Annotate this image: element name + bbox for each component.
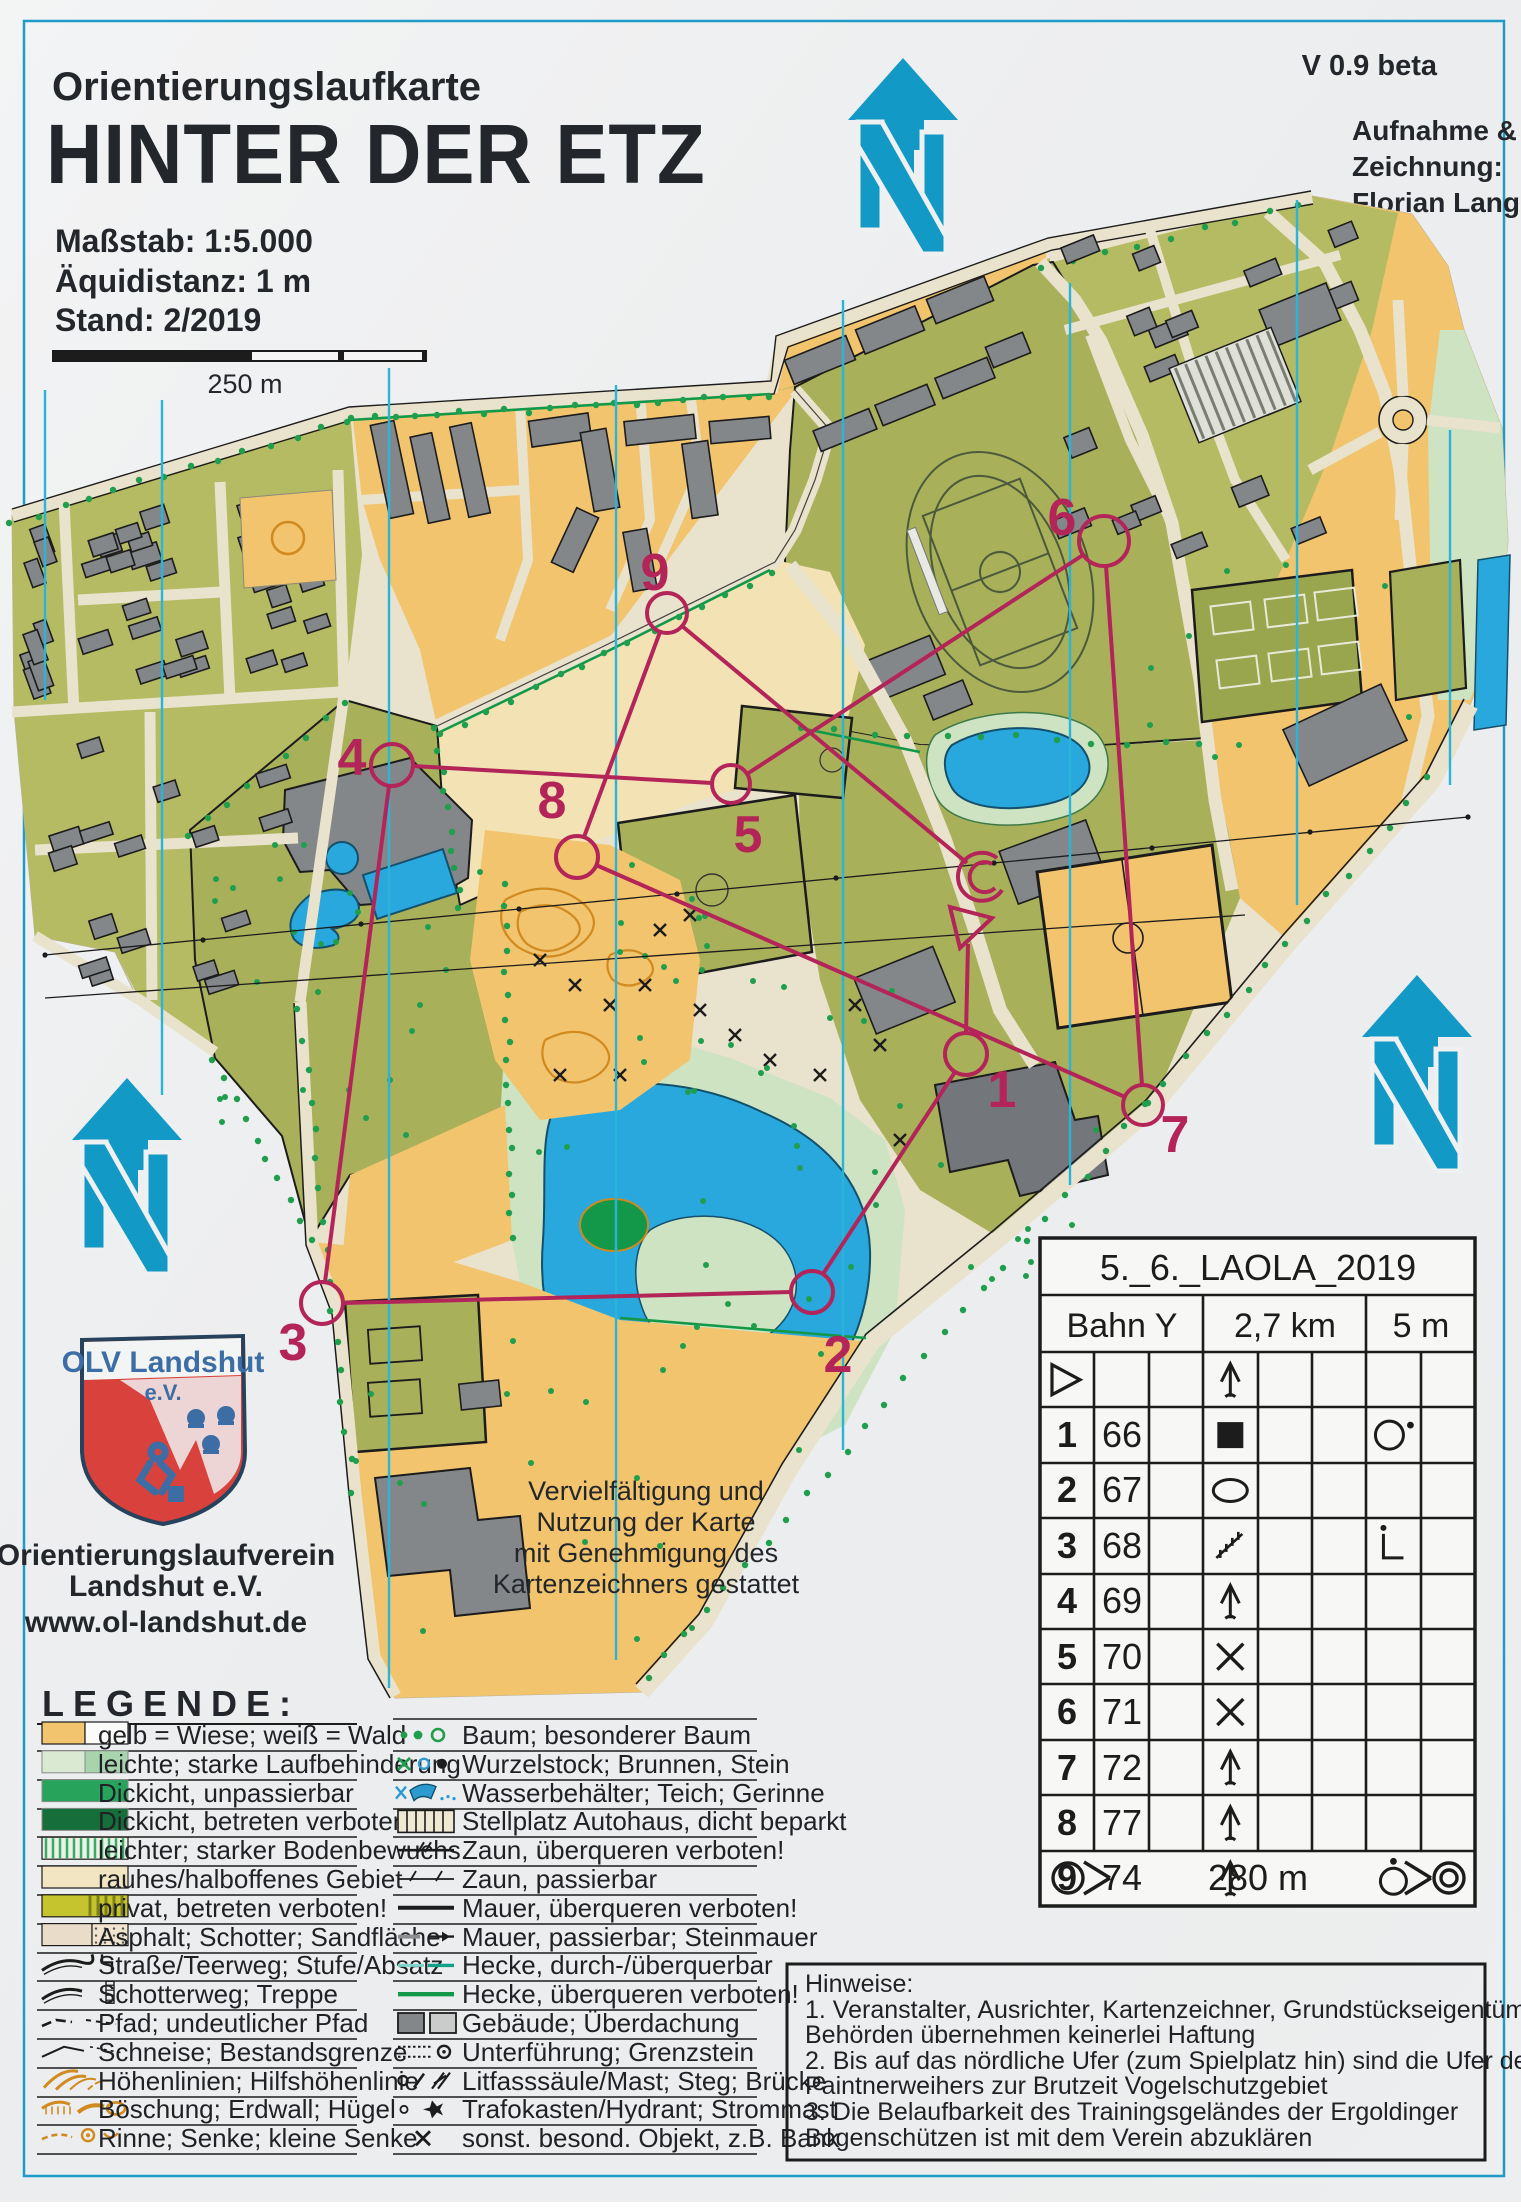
svg-text:LEGENDE:: LEGENDE: <box>42 1683 300 1724</box>
svg-text:Höhenlinien; Hilfshöhenlinie: Höhenlinien; Hilfshöhenlinie <box>98 2066 419 2096</box>
svg-text:4: 4 <box>338 729 367 787</box>
svg-text:3. Die Belaufbarkeit des Train: 3. Die Belaufbarkeit des Trainingsgeländ… <box>805 2098 1458 2126</box>
svg-text:Unterführung; Grenzstein: Unterführung; Grenzstein <box>462 2037 754 2067</box>
svg-text:6: 6 <box>1048 489 1077 547</box>
svg-text:Hinweise:: Hinweise: <box>805 1970 913 1998</box>
svg-text:sonst. besond. Objekt, z.B. Ba: sonst. besond. Objekt, z.B. Bank <box>462 2123 840 2153</box>
svg-text:Rinne; Senke; kleine Senke: Rinne; Senke; kleine Senke <box>98 2123 417 2153</box>
svg-text:Vervielfältigung und: Vervielfältigung und <box>528 1476 764 1506</box>
svg-text:70: 70 <box>1102 1636 1142 1677</box>
svg-text:leichte; starke Laufbehinderun: leichte; starke Laufbehinderung <box>98 1749 461 1779</box>
svg-text:68: 68 <box>1102 1525 1142 1566</box>
svg-text:8: 8 <box>1057 1802 1077 1843</box>
svg-text:3: 3 <box>1057 1525 1077 1566</box>
svg-text:Kartenzeichners gestattet: Kartenzeichners gestattet <box>493 1569 800 1599</box>
svg-text:rauhes/halboffenes Gebiet: rauhes/halboffenes Gebiet <box>98 1864 403 1894</box>
svg-text:4: 4 <box>1057 1580 1077 1621</box>
svg-text:Dickicht, betreten verboten!: Dickicht, betreten verboten! <box>98 1806 415 1836</box>
svg-text:Bahn Y: Bahn Y <box>1067 1307 1178 1345</box>
svg-text:Trafokasten/Hydrant; Strommast: Trafokasten/Hydrant; Strommast <box>462 2094 837 2124</box>
svg-text:2. Bis auf das nördliche Ufer: 2. Bis auf das nördliche Ufer (zum Spiel… <box>805 2047 1521 2075</box>
svg-text:Nutzung der Karte: Nutzung der Karte <box>536 1507 755 1537</box>
svg-text:Maßstab: 1:5.000: Maßstab: 1:5.000 <box>55 223 313 259</box>
svg-text:6: 6 <box>1057 1691 1077 1732</box>
svg-text:Äquidistanz: 1 m: Äquidistanz: 1 m <box>55 263 311 299</box>
svg-text:67: 67 <box>1102 1469 1142 1510</box>
svg-text:72: 72 <box>1102 1747 1142 1788</box>
svg-text:Zeichnung:: Zeichnung: <box>1352 151 1503 182</box>
svg-text:280 m: 280 m <box>1208 1857 1308 1898</box>
svg-text:Pfad; undeutlicher Pfad: Pfad; undeutlicher Pfad <box>98 2008 368 2038</box>
svg-text:2: 2 <box>1057 1469 1077 1510</box>
svg-text:2,7 km: 2,7 km <box>1234 1307 1336 1345</box>
svg-text:5._6._LAOLA_2019: 5._6._LAOLA_2019 <box>1100 1247 1416 1288</box>
svg-text:5 m: 5 m <box>1393 1307 1450 1345</box>
svg-text:mit Genehmigung des: mit Genehmigung des <box>514 1538 778 1568</box>
svg-text:1. Veranstalter, Ausrichter, K: 1. Veranstalter, Ausrichter, Kartenzeich… <box>805 1996 1521 2024</box>
svg-text:privat, betreten verboten!: privat, betreten verboten! <box>98 1893 387 1923</box>
svg-text:Hecke, durch-/überquerbar: Hecke, durch-/überquerbar <box>462 1950 773 1980</box>
svg-text:Baum; besonderer Baum: Baum; besonderer Baum <box>462 1720 751 1750</box>
svg-text:Aufnahme &: Aufnahme & <box>1352 115 1517 146</box>
svg-text:250 m: 250 m <box>207 369 282 399</box>
svg-text:1: 1 <box>988 1061 1017 1119</box>
svg-text:3: 3 <box>279 1314 308 1372</box>
svg-text:7: 7 <box>1161 1106 1190 1164</box>
svg-text:Gebäude; Überdachung: Gebäude; Überdachung <box>462 2008 740 2038</box>
svg-text:Dickicht, unpassierbar: Dickicht, unpassierbar <box>98 1778 354 1808</box>
svg-text:gelb = Wiese; weiß = Wald: gelb = Wiese; weiß = Wald <box>98 1720 406 1750</box>
svg-text:V 0.9 beta: V 0.9 beta <box>1302 50 1438 82</box>
svg-text:Schneise; Bestandsgrenze: Schneise; Bestandsgrenze <box>98 2037 407 2067</box>
svg-text:Stand: 2/2019: Stand: 2/2019 <box>55 302 261 338</box>
svg-text:OLV Landshut: OLV Landshut <box>62 1346 265 1379</box>
svg-text:Bogenschützen ist mit dem Vere: Bogenschützen ist mit dem Verein abzuklä… <box>805 2124 1312 2152</box>
svg-text:Wasserbehälter; Teich; Gerinne: Wasserbehälter; Teich; Gerinne <box>462 1778 825 1808</box>
svg-text:Asphalt; Schotter; Sandfläche: Asphalt; Schotter; Sandfläche <box>98 1922 441 1952</box>
svg-text:Orientierungslaufkarte: Orientierungslaufkarte <box>52 65 481 109</box>
svg-text:9: 9 <box>641 544 670 602</box>
svg-text:Mauer, passierbar; Steinmauer: Mauer, passierbar; Steinmauer <box>462 1922 818 1952</box>
svg-text:Mauer, überqueren verboten!: Mauer, überqueren verboten! <box>462 1893 797 1923</box>
svg-text:Landshut e.V.: Landshut e.V. <box>69 1570 263 1603</box>
svg-text:77: 77 <box>1102 1802 1142 1843</box>
svg-text:Stellplatz Autohaus, dicht bep: Stellplatz Autohaus, dicht beparkt <box>462 1806 847 1836</box>
svg-text:Straße/Teerweg; Stufe/Absatz: Straße/Teerweg; Stufe/Absatz <box>98 1950 443 1980</box>
svg-text:e.V.: e.V. <box>144 1380 181 1405</box>
svg-text:7: 7 <box>1057 1747 1077 1788</box>
svg-text:71: 71 <box>1102 1691 1142 1732</box>
svg-text:Litfasssäule/Mast; Steg; Brück: Litfasssäule/Mast; Steg; Brücke <box>462 2066 826 2096</box>
svg-text:Schotterweg; Treppe: Schotterweg; Treppe <box>98 1979 338 2009</box>
svg-text:5: 5 <box>1057 1636 1077 1677</box>
svg-text:www.ol-landshut.de: www.ol-landshut.de <box>24 1606 307 1639</box>
svg-text:5: 5 <box>734 806 763 864</box>
svg-text:Zaun, passierbar: Zaun, passierbar <box>462 1864 657 1894</box>
svg-text:Zaun, überqueren verboten!: Zaun, überqueren verboten! <box>462 1835 784 1865</box>
svg-text:66: 66 <box>1102 1414 1142 1455</box>
svg-text:HINTER DER ETZ: HINTER DER ETZ <box>46 108 706 201</box>
svg-text:1: 1 <box>1057 1414 1077 1455</box>
svg-text:Orientierungslaufverein: Orientierungslaufverein <box>0 1539 335 1572</box>
svg-text:8: 8 <box>538 772 567 830</box>
svg-text:Behörden übernehmen keinerlei: Behörden übernehmen keinerlei Haftung <box>805 2021 1255 2049</box>
svg-text:69: 69 <box>1102 1580 1142 1621</box>
svg-text:2: 2 <box>824 1326 853 1384</box>
svg-text:Böschung; Erdwall; Hügel: Böschung; Erdwall; Hügel <box>98 2094 396 2124</box>
svg-text:Hecke, überqueren verboten!: Hecke, überqueren verboten! <box>462 1979 799 2009</box>
svg-text:Paintnerweihers zur Brutzeit V: Paintnerweihers zur Brutzeit Vogelschutz… <box>805 2072 1328 2100</box>
svg-text:Wurzelstock; Brunnen, Stein: Wurzelstock; Brunnen, Stein <box>462 1749 790 1779</box>
